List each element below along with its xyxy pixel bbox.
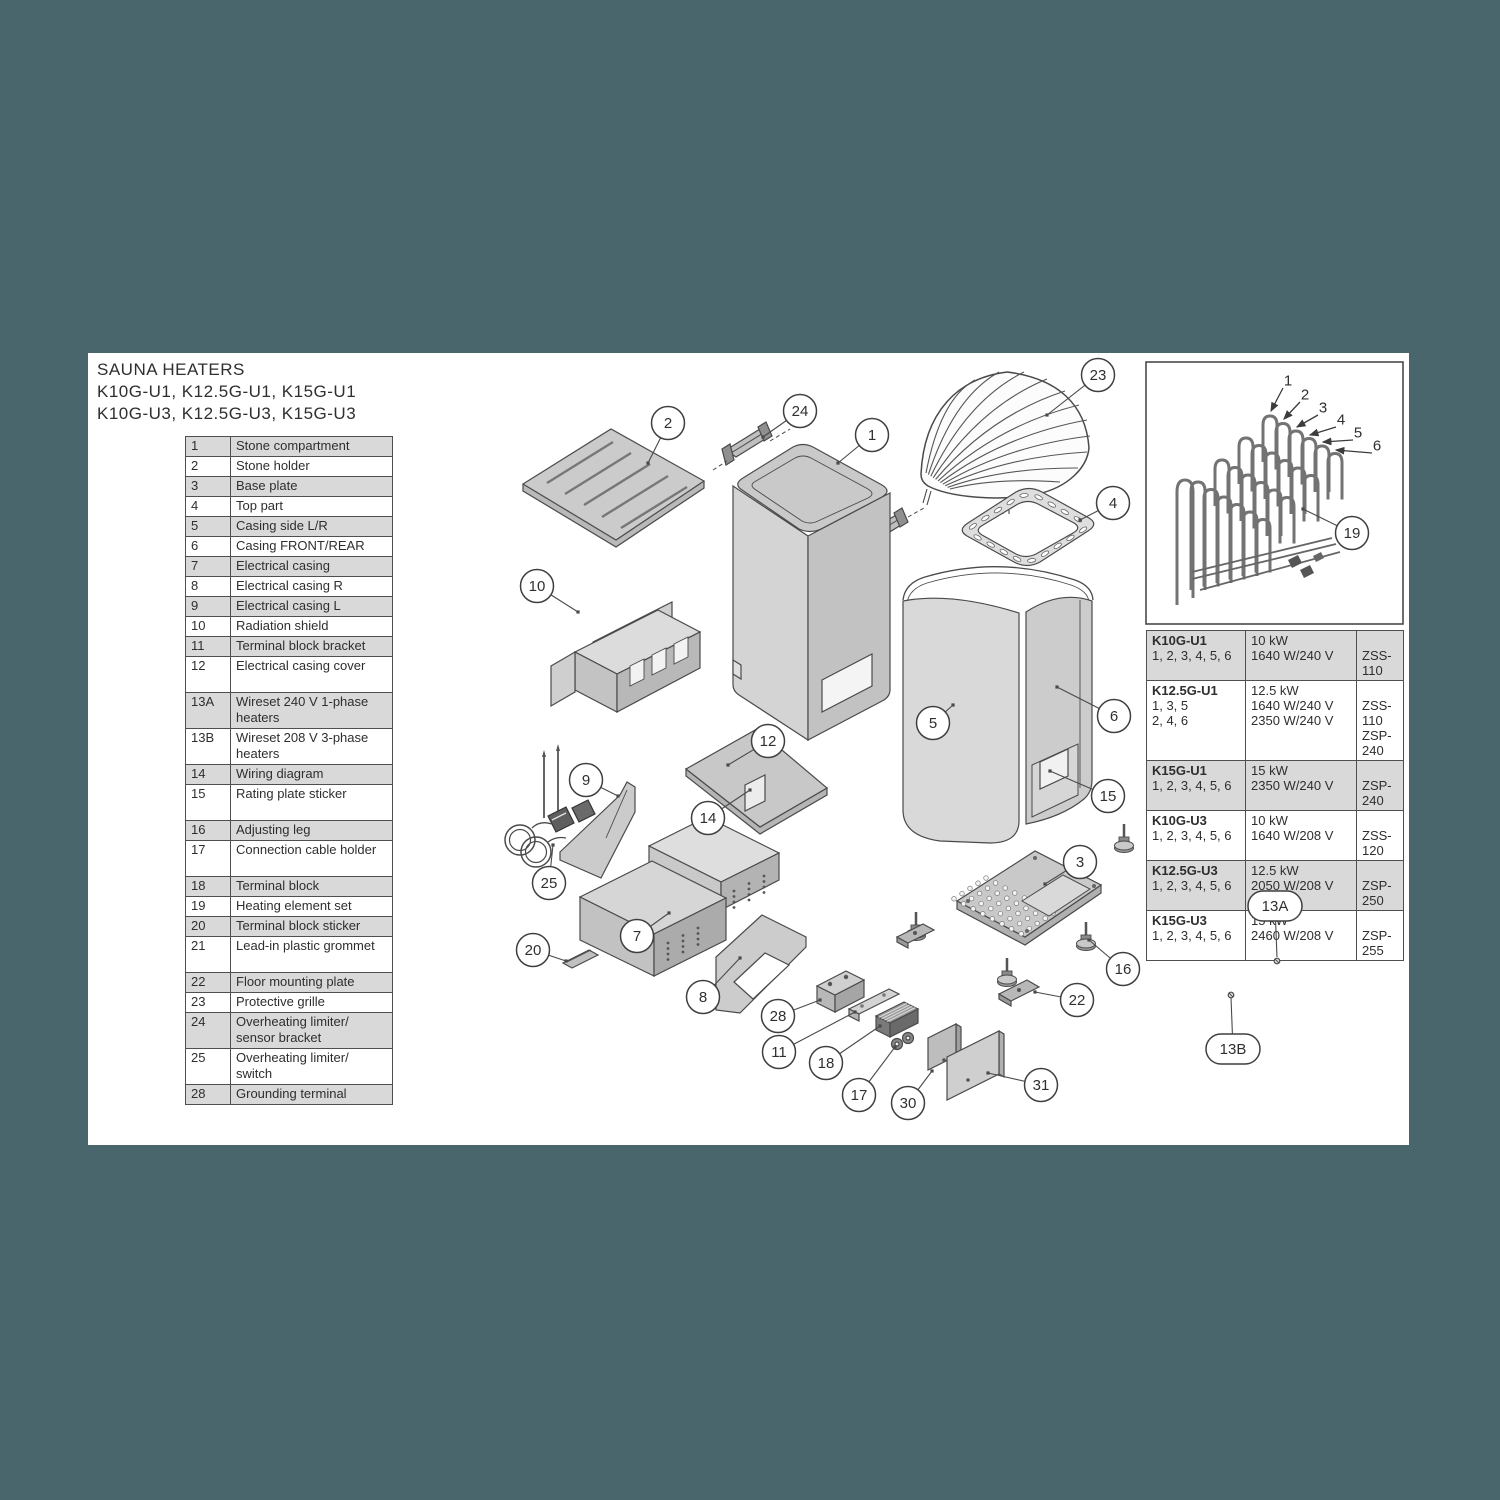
part-number: 8 xyxy=(186,577,231,597)
part-description: Lead-in plastic grommet xyxy=(231,937,393,973)
part-description: Terminal block xyxy=(231,877,393,897)
part-description: Wireset 208 V 3-phase heaters xyxy=(231,729,393,765)
parts-row-23: 23Protective grille xyxy=(186,993,393,1013)
part-number: 9 xyxy=(186,597,231,617)
spec-code: ZSS-120 xyxy=(1357,811,1404,861)
part-number: 5 xyxy=(186,517,231,537)
part-number: 16 xyxy=(186,821,231,841)
part-description: Electrical casing R xyxy=(231,577,393,597)
part-description: Top part xyxy=(231,497,393,517)
part-description: Stone compartment xyxy=(231,437,393,457)
spec-row-K10G-U1: K10G-U11, 2, 3, 4, 5, 610 kW1640 W/240 V… xyxy=(1147,631,1404,681)
parts-row-21: 21Lead-in plastic grommet xyxy=(186,937,393,973)
spec-model: K15G-U31, 2, 3, 4, 5, 6 xyxy=(1147,911,1246,961)
part-number: 24 xyxy=(186,1013,231,1049)
parts-row-8: 8Electrical casing R xyxy=(186,577,393,597)
spec-row-K10G-U3: K10G-U31, 2, 3, 4, 5, 610 kW1640 W/208 V… xyxy=(1147,811,1404,861)
part-description: Wiring diagram xyxy=(231,765,393,785)
spec-code: ZSP-255 xyxy=(1357,911,1404,961)
spec-power: 15 kW2350 W/240 V xyxy=(1246,761,1357,811)
part-number: 22 xyxy=(186,973,231,993)
part-number: 13B xyxy=(186,729,231,765)
spec-model: K12.5G-U31, 2, 3, 4, 5, 6 xyxy=(1147,861,1246,911)
part-number: 19 xyxy=(186,897,231,917)
doc-title: SAUNA HEATERS xyxy=(97,359,356,381)
part-number: 3 xyxy=(186,477,231,497)
spec-row-K12.5G-U1: K12.5G-U11, 3, 52, 4, 612.5 kW1640 W/240… xyxy=(1147,681,1404,761)
part-description: Terminal block sticker xyxy=(231,917,393,937)
part-description: Base plate xyxy=(231,477,393,497)
part-number: 7 xyxy=(186,557,231,577)
parts-row-22: 22Floor mounting plate xyxy=(186,973,393,993)
parts-row-10: 10Radiation shield xyxy=(186,617,393,637)
parts-row-6: 6Casing FRONT/REAR xyxy=(186,537,393,557)
parts-row-3: 3Base plate xyxy=(186,477,393,497)
parts-row-13B: 13BWireset 208 V 3-phase heaters xyxy=(186,729,393,765)
parts-row-15: 15Rating plate sticker xyxy=(186,785,393,821)
parts-row-25: 25Overheating limiter/ switch xyxy=(186,1049,393,1085)
part-number: 11 xyxy=(186,637,231,657)
parts-list-table: 1Stone compartment2Stone holder3Base pla… xyxy=(185,436,393,1105)
part-number: 14 xyxy=(186,765,231,785)
title-block: SAUNA HEATERS K10G-U1, K12.5G-U1, K15G-U… xyxy=(97,359,356,425)
part-number: 20 xyxy=(186,917,231,937)
part-description: Heating element set xyxy=(231,897,393,917)
parts-row-18: 18Terminal block xyxy=(186,877,393,897)
part-number: 2 xyxy=(186,457,231,477)
doc-models-u3: K10G-U3, K12.5G-U3, K15G-U3 xyxy=(97,403,356,425)
parts-row-24: 24Overheating limiter/ sensor bracket xyxy=(186,1013,393,1049)
spec-model: K10G-U11, 2, 3, 4, 5, 6 xyxy=(1147,631,1246,681)
spec-model: K10G-U31, 2, 3, 4, 5, 6 xyxy=(1147,811,1246,861)
spec-power: 12.5 kW1640 W/240 V2350 W/240 V xyxy=(1246,681,1357,761)
part-description: Casing FRONT/REAR xyxy=(231,537,393,557)
document-page: SAUNA HEATERS K10G-U1, K12.5G-U1, K15G-U… xyxy=(88,353,1409,1145)
part-number: 18 xyxy=(186,877,231,897)
parts-row-1: 1Stone compartment xyxy=(186,437,393,457)
part-number: 28 xyxy=(186,1085,231,1105)
parts-row-14: 14Wiring diagram xyxy=(186,765,393,785)
part-description: Overheating limiter/ sensor bracket xyxy=(231,1013,393,1049)
part-number: 25 xyxy=(186,1049,231,1085)
part-description: Wireset 240 V 1-phase heaters xyxy=(231,693,393,729)
parts-row-17: 17Connection cable holder xyxy=(186,841,393,877)
part-description: Electrical casing cover xyxy=(231,657,393,693)
part-description: Overheating limiter/ switch xyxy=(231,1049,393,1085)
part-description: Adjusting leg xyxy=(231,821,393,841)
parts-row-4: 4Top part xyxy=(186,497,393,517)
parts-row-16: 16Adjusting leg xyxy=(186,821,393,841)
parts-row-5: 5Casing side L/R xyxy=(186,517,393,537)
part-description: Stone holder xyxy=(231,457,393,477)
part-number: 4 xyxy=(186,497,231,517)
spec-row-K15G-U3: K15G-U31, 2, 3, 4, 5, 615 kW2460 W/208 V… xyxy=(1147,911,1404,961)
parts-row-13A: 13AWireset 240 V 1-phase heaters xyxy=(186,693,393,729)
spec-row-K12.5G-U3: K12.5G-U31, 2, 3, 4, 5, 612.5 kW2050 W/2… xyxy=(1147,861,1404,911)
parts-row-12: 12Electrical casing cover xyxy=(186,657,393,693)
part-description: Connection cable holder xyxy=(231,841,393,877)
spec-table: K10G-U11, 2, 3, 4, 5, 610 kW1640 W/240 V… xyxy=(1146,630,1404,961)
part-number: 21 xyxy=(186,937,231,973)
part-description: Floor mounting plate xyxy=(231,973,393,993)
part-number: 13A xyxy=(186,693,231,729)
part-number: 23 xyxy=(186,993,231,1013)
part-description: Casing side L/R xyxy=(231,517,393,537)
parts-row-20: 20Terminal block sticker xyxy=(186,917,393,937)
part-description: Grounding terminal xyxy=(231,1085,393,1105)
part-number: 12 xyxy=(186,657,231,693)
spec-code: ZSP-250 xyxy=(1357,861,1404,911)
part-description: Rating plate sticker xyxy=(231,785,393,821)
spec-code: ZSS-110ZSP-240 xyxy=(1357,681,1404,761)
part-description: Terminal block bracket xyxy=(231,637,393,657)
parts-row-2: 2Stone holder xyxy=(186,457,393,477)
spec-power: 12.5 kW2050 W/208 V xyxy=(1246,861,1357,911)
spec-power: 10 kW1640 W/240 V xyxy=(1246,631,1357,681)
parts-row-19: 19Heating element set xyxy=(186,897,393,917)
parts-row-9: 9Electrical casing L xyxy=(186,597,393,617)
spec-code: ZSS-110 xyxy=(1357,631,1404,681)
part-description: Electrical casing L xyxy=(231,597,393,617)
spec-model: K15G-U11, 2, 3, 4, 5, 6 xyxy=(1147,761,1246,811)
spec-code: ZSP-240 xyxy=(1357,761,1404,811)
doc-models-u1: K10G-U1, K12.5G-U1, K15G-U1 xyxy=(97,381,356,403)
spec-power: 15 kW2460 W/208 V xyxy=(1246,911,1357,961)
part-number: 6 xyxy=(186,537,231,557)
spec-row-K15G-U1: K15G-U11, 2, 3, 4, 5, 615 kW2350 W/240 V… xyxy=(1147,761,1404,811)
part-number: 1 xyxy=(186,437,231,457)
part-description: Electrical casing xyxy=(231,557,393,577)
parts-row-11: 11Terminal block bracket xyxy=(186,637,393,657)
part-number: 17 xyxy=(186,841,231,877)
part-description: Protective grille xyxy=(231,993,393,1013)
parts-row-7: 7Electrical casing xyxy=(186,557,393,577)
part-description: Radiation shield xyxy=(231,617,393,637)
part-number: 10 xyxy=(186,617,231,637)
spec-power: 10 kW1640 W/208 V xyxy=(1246,811,1357,861)
page-background: SAUNA HEATERS K10G-U1, K12.5G-U1, K15G-U… xyxy=(0,0,1500,1500)
parts-row-28: 28Grounding terminal xyxy=(186,1085,393,1105)
part-number: 15 xyxy=(186,785,231,821)
spec-model: K12.5G-U11, 3, 52, 4, 6 xyxy=(1147,681,1246,761)
